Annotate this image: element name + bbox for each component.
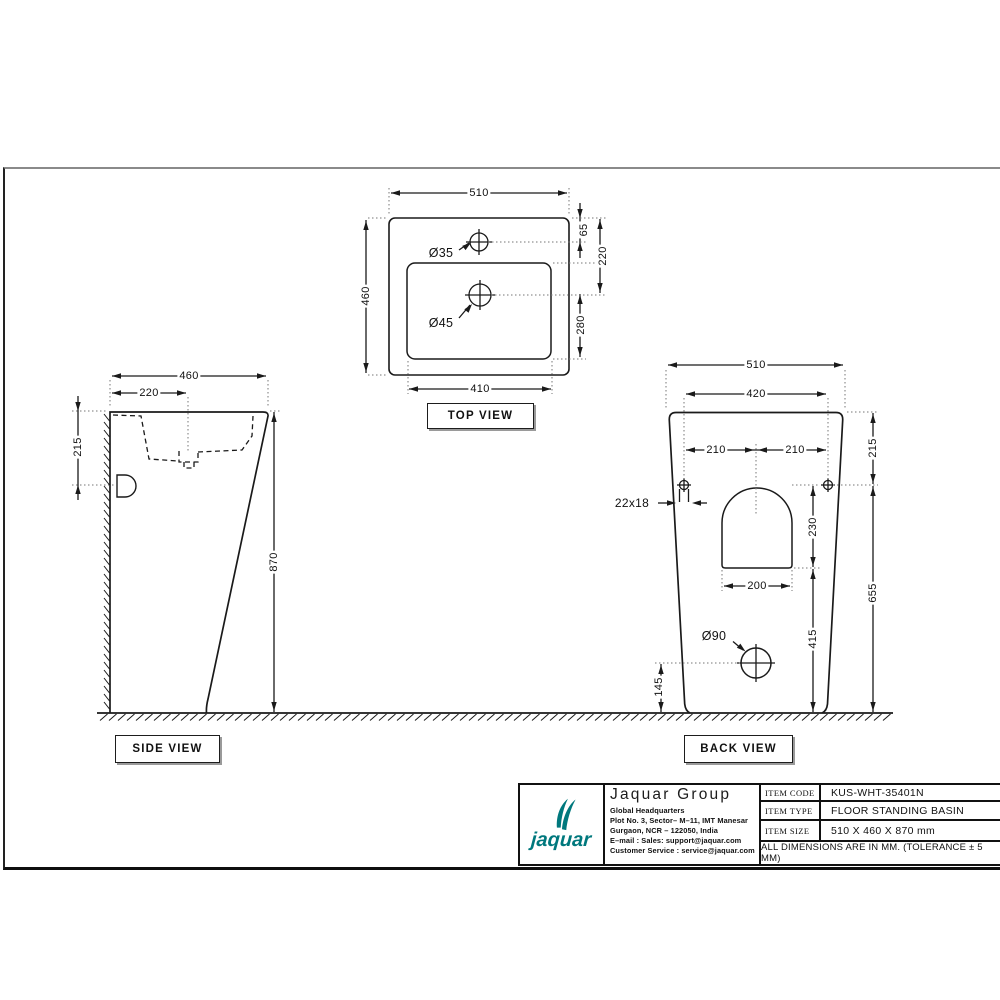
label-faucet-hole-dia: Ø35 [427,246,456,260]
title-block: jaquar Jaquar Group Global Headquarters … [518,783,1000,866]
dim-side-height: 870 [268,550,280,573]
company-name: Jaquar Group [610,786,759,804]
label-back-drain-dia: Ø90 [700,629,729,643]
company-addr1: Plot No. 3, Sector– M–11, IMT Manesar [610,816,759,826]
dim-side-rim-depth: 215 [72,435,84,458]
tolerance-row: ALL DIMENSIONS ARE IN MM. (TOLERANCE ± 5… [761,842,1000,864]
drawing-sheet: 510 460 65 220 280 410 Ø35 Ø45 TOP VIEW … [0,0,1000,1000]
dim-top-depth: 460 [360,284,372,307]
item-code-row: ITEM CODE KUS-WHT-35401N [761,785,1000,802]
company-hq: Global Headquarters [610,806,759,816]
item-table: ITEM CODE KUS-WHT-35401N ITEM TYPE FLOOR… [761,785,1000,864]
jaquar-leaf-icon [545,797,579,831]
side-view-label: SIDE VIEW [132,743,202,755]
side-view-label-box: SIDE VIEW [115,735,220,763]
dim-back-width: 510 [744,359,767,371]
item-type-label: ITEM TYPE [761,802,821,819]
item-code-label: ITEM CODE [761,785,821,800]
dim-top-bowl-depth: 280 [575,313,587,336]
label-drain-hole-dia: Ø45 [427,316,456,330]
company-cell: Jaquar Group Global Headquarters Plot No… [605,785,761,864]
dim-back-drain-height: 145 [653,675,665,698]
dim-back-drain-to-arch: 415 [807,627,819,650]
dim-top-drain-offset: 220 [597,244,609,267]
top-view-label-box: TOP VIEW [427,403,534,429]
logo-cell: jaquar [520,785,605,864]
item-size-label: ITEM SIZE [761,821,821,840]
dim-back-lower-height: 655 [867,581,879,604]
company-service: Customer Service : service@jaquar.com [610,846,759,856]
dim-back-fix-half-left: 210 [704,444,727,456]
item-type-row: ITEM TYPE FLOOR STANDING BASIN [761,802,1000,821]
item-size-row: ITEM SIZE 510 X 460 X 870 mm [761,821,1000,842]
dim-top-hole-offset: 65 [578,222,590,239]
dim-back-fix-half-right: 210 [783,444,806,456]
dim-top-width: 510 [467,187,490,199]
item-code-value: KUS-WHT-35401N [821,785,1000,800]
dim-back-fix-span: 420 [744,388,767,400]
tolerance-note: ALL DIMENSIONS ARE IN MM. (TOLERANCE ± 5… [761,842,1000,864]
label-fix-slot-size: 22x18 [613,496,651,510]
dim-top-bowl-width: 410 [468,383,491,395]
dim-back-arch-height: 230 [807,515,819,538]
dim-back-arch-width: 200 [745,580,768,592]
dim-back-fix-drop: 215 [867,436,879,459]
back-view-label: BACK VIEW [700,743,777,755]
company-addr2: Gurgaon, NCR – 122050, India [610,826,759,836]
jaquar-wordmark: jaquar [531,829,593,852]
item-size-value: 510 X 460 X 870 mm [821,821,1000,840]
company-email: E–mail : Sales: support@jaquar.com [610,836,759,846]
item-type-value: FLOOR STANDING BASIN [821,802,1000,819]
back-view-label-box: BACK VIEW [684,735,793,763]
dim-side-depth: 460 [177,370,200,382]
top-view-label: TOP VIEW [448,410,513,422]
dim-side-drain-offset: 220 [137,387,160,399]
